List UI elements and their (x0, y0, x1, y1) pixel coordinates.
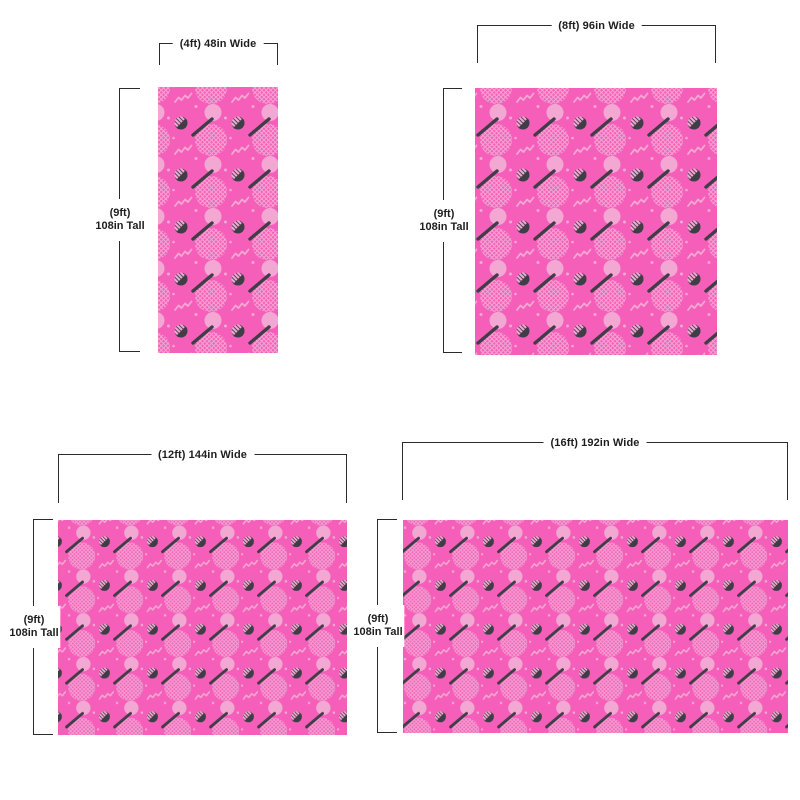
dimension-tick (33, 519, 53, 520)
width-dimension-12ft: (12ft) 144in Wide (58, 454, 347, 455)
dimension-tick (787, 442, 788, 500)
dimension-tick (402, 442, 403, 500)
height-label-line2: 108in Tall (353, 626, 402, 638)
height-label-16ft: (9ft)108in Tall (351, 605, 404, 647)
width-label-8ft: (8ft) 96in Wide (551, 20, 642, 32)
dimension-tick (443, 352, 462, 353)
height-label-12ft: (9ft)108in Tall (7, 606, 60, 648)
fabric-swatch-4ft (158, 87, 278, 353)
height-dimension-4ft: (9ft)108in Tall (119, 88, 120, 352)
width-dimension-8ft: (8ft) 96in Wide (477, 25, 716, 26)
dimension-tick (33, 734, 53, 735)
swatch-layer (0, 0, 800, 800)
width-dimension-16ft: (16ft) 192in Wide (402, 442, 788, 443)
width-label-16ft: (16ft) 192in Wide (543, 437, 646, 449)
dimension-tick (346, 454, 347, 503)
fabric-swatch-12ft (58, 520, 347, 735)
height-label-line2: 108in Tall (419, 221, 468, 233)
dimension-tick (119, 351, 140, 352)
height-dimension-16ft: (9ft)108in Tall (377, 519, 378, 733)
dimension-tick (159, 43, 160, 65)
dimension-tick (477, 25, 478, 63)
width-label-4ft: (4ft) 48in Wide (173, 38, 264, 50)
dimension-tick (443, 88, 462, 89)
height-label-4ft: (9ft)108in Tall (93, 199, 146, 241)
dimension-tick (119, 88, 140, 89)
width-dimension-4ft: (4ft) 48in Wide (159, 43, 278, 44)
fabric-swatch-16ft (403, 520, 788, 733)
height-label-line1: (9ft) (110, 207, 131, 219)
dimension-tick (377, 732, 397, 733)
height-dimension-8ft: (9ft)108in Tall (443, 88, 444, 353)
fabric-swatch-8ft (475, 88, 717, 355)
dimension-tick (277, 43, 278, 65)
height-label-line2: 108in Tall (9, 627, 58, 639)
width-label-12ft: (12ft) 144in Wide (151, 449, 254, 461)
height-label-line1: (9ft) (434, 208, 455, 220)
height-label-line1: (9ft) (24, 614, 45, 626)
height-label-8ft: (9ft)108in Tall (417, 200, 470, 242)
height-label-line1: (9ft) (368, 613, 389, 625)
dimension-tick (377, 519, 397, 520)
height-label-line2: 108in Tall (95, 220, 144, 232)
height-dimension-12ft: (9ft)108in Tall (33, 519, 34, 735)
dimension-tick (58, 454, 59, 503)
dimension-tick (715, 25, 716, 63)
